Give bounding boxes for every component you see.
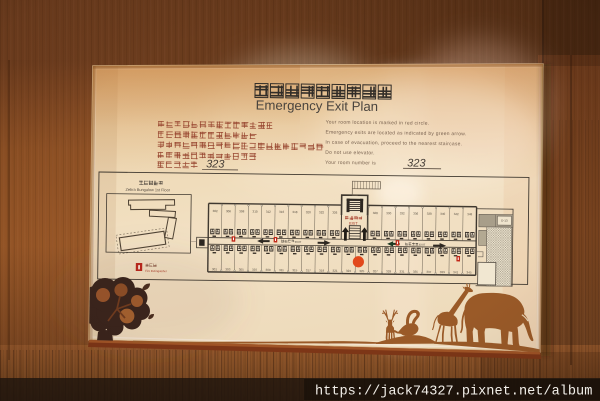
svg-text:https://jack74327.pixnet.net/a: https://jack74327.pixnet.net/album	[315, 385, 592, 400]
